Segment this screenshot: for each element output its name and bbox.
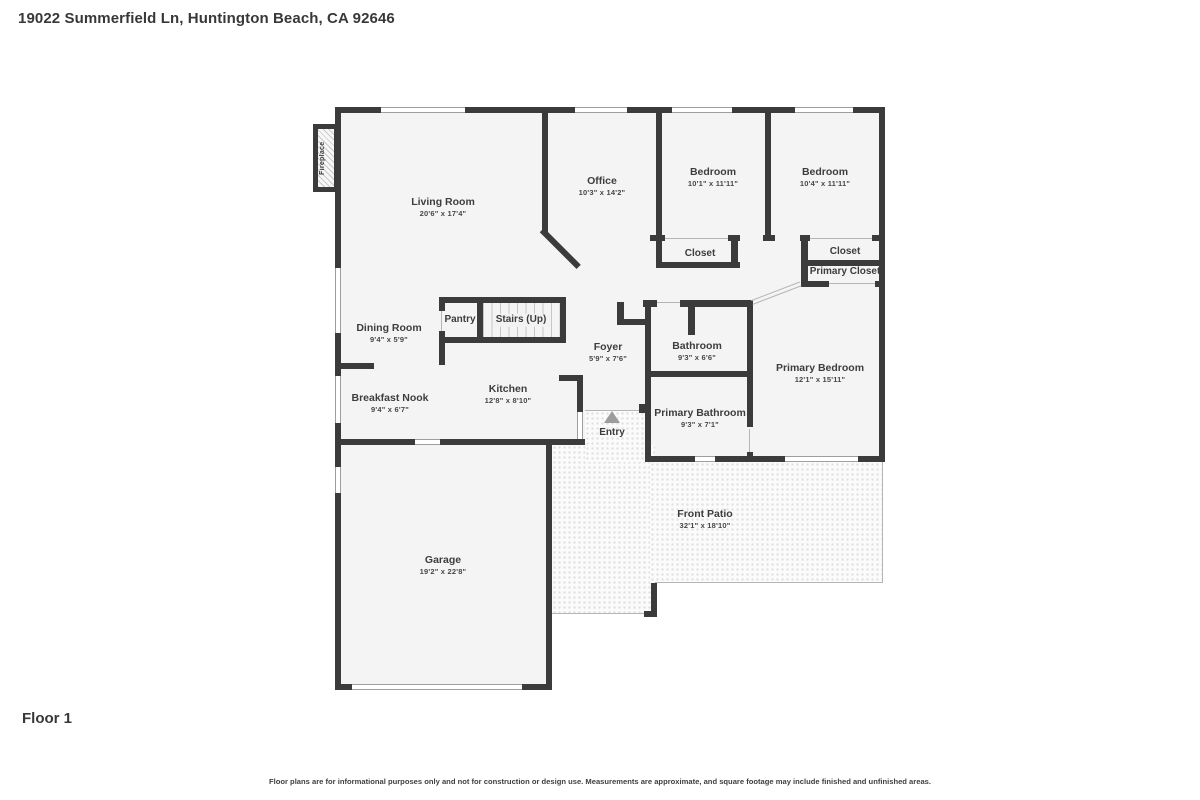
room-label-front-patio: Front Patio 32'1" x 18'10" — [677, 508, 732, 531]
wall-garage-right — [546, 440, 552, 690]
bathroom-bottom-wall — [645, 371, 753, 377]
window — [785, 456, 858, 462]
wall-nook-garage — [335, 439, 585, 445]
window — [672, 107, 732, 113]
window — [335, 467, 341, 493]
garage-door — [352, 684, 522, 690]
window — [795, 107, 853, 113]
bathroom-inner-stub — [688, 307, 695, 335]
bathroom-left-wall — [645, 300, 651, 377]
wall-bedroom-divider — [765, 107, 771, 235]
closet1-right-wall — [731, 241, 738, 268]
front-door — [577, 412, 583, 439]
wall-segment — [763, 235, 775, 241]
pantry-left-wall-a — [439, 297, 445, 311]
room-label-living: Living Room 20'6" x 17'4" — [411, 196, 475, 219]
room-label-bedroom1: Bedroom 10'1" x 11'11" — [688, 166, 738, 189]
window — [575, 107, 627, 113]
floor-number-label: Floor 1 — [22, 710, 72, 727]
stairs-right-wall — [560, 297, 566, 343]
bathroom-right-wall — [747, 300, 753, 427]
primary-closet-door-line — [829, 283, 875, 284]
window — [381, 107, 465, 113]
room-label-closet1: Closet — [685, 248, 716, 261]
closet1-bottom-wall — [656, 262, 740, 268]
primary-bath-left-wall — [645, 377, 651, 462]
closet1-door-line — [665, 238, 728, 239]
patio-right-line — [882, 462, 883, 583]
room-label-foyer: Foyer 5'9" x 7'6" — [589, 341, 627, 364]
room-label-garage: Garage 19'2" x 22'8" — [420, 554, 467, 577]
primary-closet-bottom-a — [801, 281, 829, 287]
stairs-bottom-wall — [439, 337, 566, 343]
patio-bottom-line — [655, 582, 883, 583]
fireplace: Fireplace — [313, 124, 339, 192]
bathroom-top-wall — [680, 300, 753, 307]
disclaimer-text: Floor plans are for informational purpos… — [0, 777, 1200, 786]
patio-corner-h — [644, 611, 657, 617]
wall-left-mid — [335, 333, 341, 376]
entry-arrow-icon — [604, 411, 620, 423]
room-label-breakfast-nook: Breakfast Nook 9'4" x 6'7" — [351, 392, 428, 415]
floor-plan: Fireplace Living Room 20'6" x 17'4" Offi… — [0, 0, 1200, 800]
window — [335, 376, 341, 423]
primary-closet-bottom-b — [875, 281, 885, 287]
primary-bath-door-line — [749, 429, 750, 452]
front-door-wall — [577, 375, 583, 412]
closet2-door-line — [810, 238, 872, 239]
room-label-primary-closet: Primary Closet — [810, 266, 881, 279]
room-label-bathroom: Bathroom 9'3" x 6'6" — [672, 340, 722, 363]
room-label-kitchen: Kitchen 12'8" x 8'10" — [485, 383, 532, 406]
window — [335, 268, 341, 333]
wall-dining-nook-divider — [338, 363, 374, 369]
room-label-primary-bedroom: Primary Bedroom 12'1" x 15'11" — [776, 362, 864, 385]
patio-strip-bottom-line — [552, 613, 652, 614]
room-label-office: Office 10'3" x 14'2" — [579, 175, 626, 198]
room-label-primary-bathroom: Primary Bathroom 9'3" x 7'1" — [654, 407, 746, 430]
room-label-bedroom2: Bedroom 10'4" x 11'11" — [800, 166, 850, 189]
pantry-door-line — [441, 311, 442, 331]
bathroom-right-cap — [747, 452, 753, 462]
wall-segment — [872, 235, 885, 241]
floor-plan-page: 19022 Summerfield Ln, Huntington Beach, … — [0, 0, 1200, 800]
fireplace-label: Fireplace — [319, 131, 333, 185]
window — [695, 456, 715, 462]
wall-living-office — [542, 107, 548, 232]
patio-strip — [552, 445, 655, 613]
room-label-dining: Dining Room 9'4" x 5'9" — [356, 322, 421, 345]
bathroom-door-line — [657, 302, 680, 303]
room-label-closet2: Closet — [830, 246, 861, 259]
room-label-pantry: Pantry — [444, 314, 475, 327]
room-label-stairs: Stairs (Up) — [493, 314, 550, 327]
room-label-entry: Entry — [599, 427, 625, 440]
porch-corner-cap — [639, 404, 647, 413]
garage-entry-door — [415, 439, 440, 445]
